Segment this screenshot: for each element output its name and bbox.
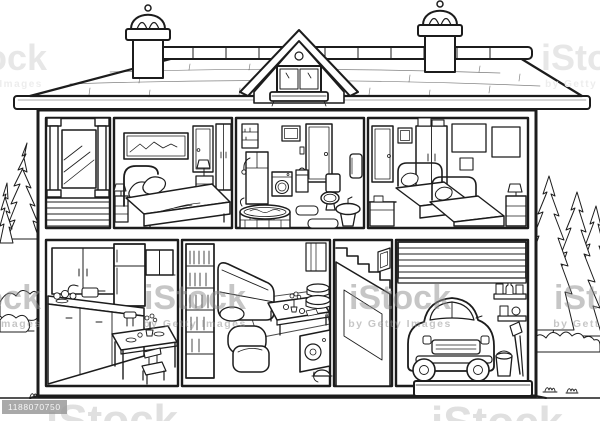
table-lamp [508, 184, 522, 192]
front-step [414, 381, 532, 396]
stock-illustration-canvas: iStock by Getty Images iStock by Getty I… [0, 0, 600, 421]
table-lamp [197, 160, 210, 168]
porch-window [62, 130, 96, 188]
bath-mat [296, 206, 318, 215]
chimney-dome [131, 15, 165, 29]
wall-poster [492, 127, 520, 157]
canister [516, 285, 523, 294]
paint-can [512, 307, 520, 315]
evergreen-tree [0, 183, 13, 243]
window-flower-box [270, 92, 328, 101]
armchair [228, 326, 269, 372]
chimney-dome [423, 11, 457, 25]
washing-machine [272, 172, 292, 196]
ridge-cap-band [160, 47, 532, 59]
grille [432, 340, 480, 354]
wall-poster [460, 158, 473, 170]
storage-box [432, 120, 444, 126]
pouf-stack [306, 284, 330, 309]
dome-finial [437, 1, 443, 7]
chimney-right [418, 1, 462, 72]
bucket [496, 351, 512, 376]
grass-tuft [543, 388, 557, 392]
refrigerator [114, 244, 145, 306]
grass-tuft [566, 389, 578, 393]
sofa-armrest [220, 307, 244, 321]
wall-poster [452, 124, 486, 152]
dormer-window [277, 66, 321, 92]
nightstand [506, 196, 526, 226]
wall-picture [124, 133, 188, 159]
wall-frame [378, 248, 390, 272]
dome-finial [145, 5, 151, 11]
laundry-bin [296, 170, 308, 192]
canister [496, 284, 503, 294]
evergreen-tree [7, 143, 39, 239]
bush [0, 314, 30, 332]
nightstand [115, 196, 128, 222]
headlight [423, 336, 431, 344]
credit-id-badge: 1188070750 [2, 400, 67, 414]
chimney-left [126, 5, 170, 78]
storage-box [418, 118, 431, 126]
bath-mat [308, 219, 338, 228]
canister [500, 306, 508, 316]
headlight [481, 336, 489, 344]
house-cutaway-illustration [0, 0, 600, 421]
